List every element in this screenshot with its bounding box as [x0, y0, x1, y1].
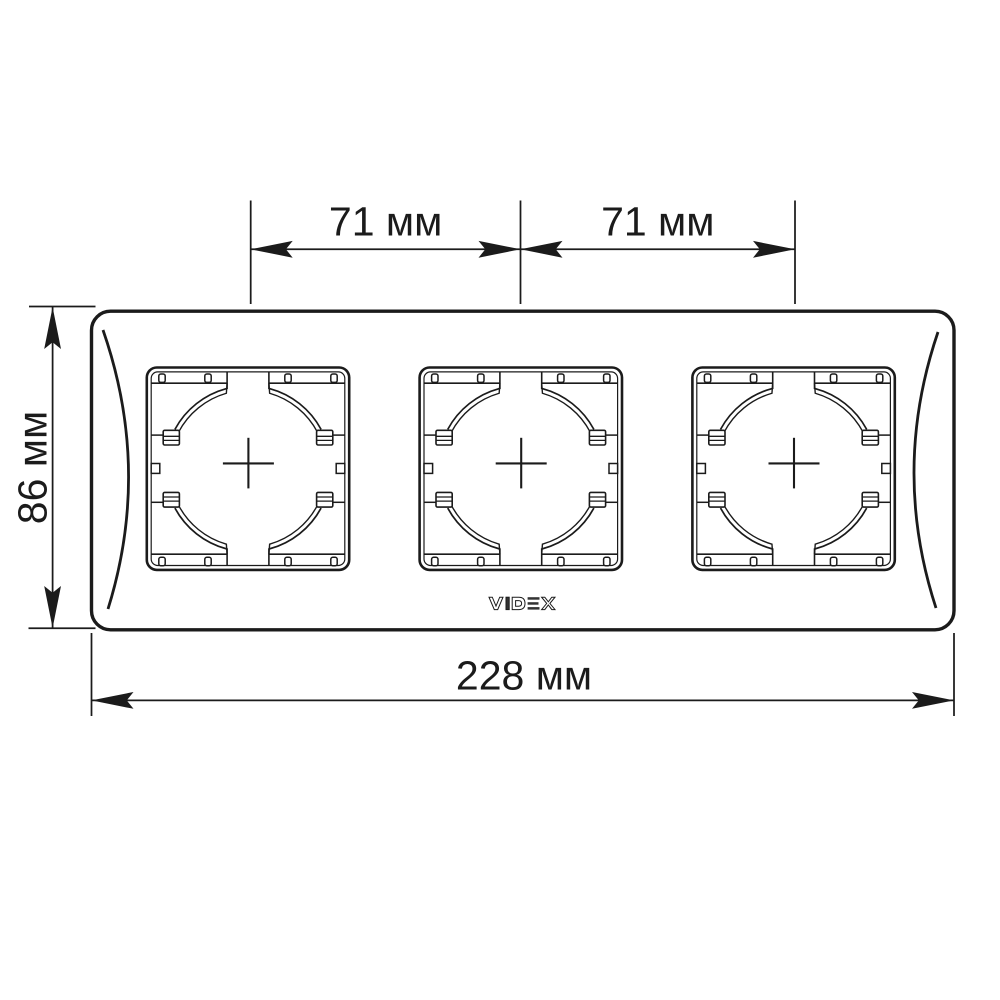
svg-text:71 мм: 71 мм [329, 198, 442, 244]
svg-text:228 мм: 228 мм [456, 653, 592, 699]
svg-text:71 мм: 71 мм [601, 198, 714, 244]
svg-text:86 мм: 86 мм [10, 411, 56, 524]
